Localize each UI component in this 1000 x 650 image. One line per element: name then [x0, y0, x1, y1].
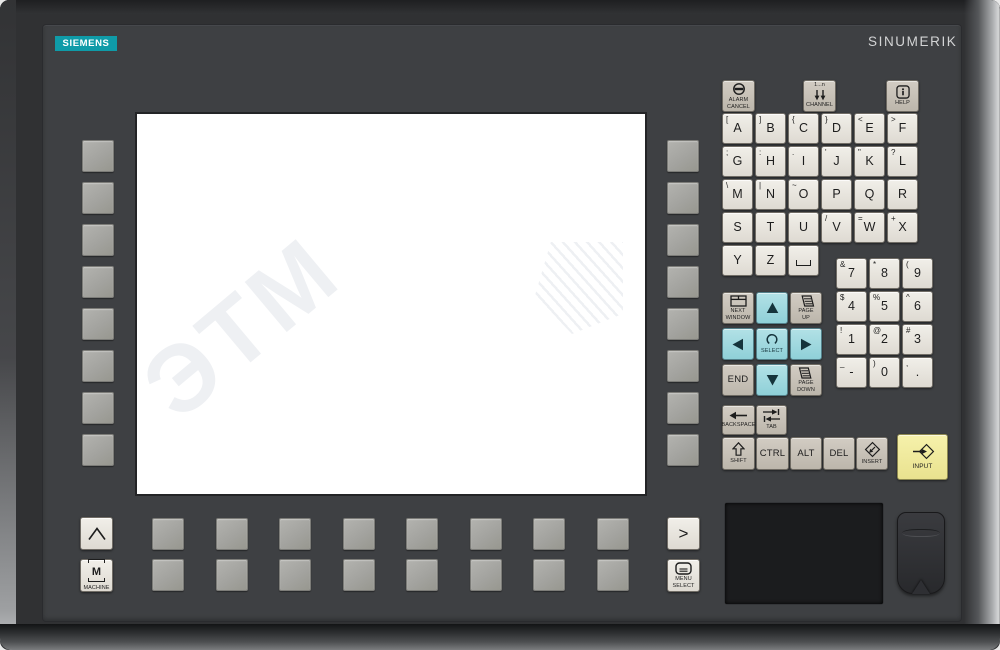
softkey-bottom-top-8[interactable] — [597, 518, 629, 550]
space-glyph — [796, 260, 811, 266]
insert-icon — [864, 441, 881, 458]
key-label: C — [799, 122, 808, 135]
watermark-text: ЭТМ — [137, 216, 361, 441]
key-label: INPUT — [913, 463, 933, 471]
key-label: F — [899, 122, 907, 135]
key-f[interactable]: >F — [887, 113, 918, 144]
key-shift-symbol: ) — [873, 360, 876, 368]
page-down-icon — [798, 367, 815, 379]
key-label: Y — [733, 254, 741, 267]
key-a[interactable]: [A — [722, 113, 753, 144]
key-shift-symbol: < — [858, 116, 863, 124]
key-label: 9 — [914, 267, 921, 280]
frame-left-edge — [0, 0, 16, 650]
softkey-bottom-lower-2[interactable] — [216, 559, 248, 591]
key-top-text: 1...n — [814, 83, 825, 89]
key-label: 8 — [881, 267, 888, 280]
key-shift-symbol: , — [906, 360, 908, 368]
key-label: 3 — [914, 333, 921, 346]
key-label: SELECT — [761, 348, 783, 355]
arrow-down-icon — [766, 374, 779, 386]
input-icon — [911, 443, 935, 460]
key-label: 4 — [848, 300, 855, 313]
key-label: E — [865, 122, 873, 135]
key-shift-symbol: / — [825, 215, 827, 223]
menu-forward-key[interactable]: > — [667, 517, 700, 550]
select-key[interactable]: SELECT — [756, 328, 788, 360]
key-y[interactable]: Y — [722, 245, 753, 276]
key-shift-symbol: # — [906, 327, 910, 335]
key-label: R — [898, 188, 907, 201]
key-shift-symbol: [ — [726, 116, 728, 124]
softkey-left-2[interactable] — [82, 182, 114, 214]
key-8[interactable]: *8 — [869, 258, 900, 289]
key-4[interactable]: $4 — [836, 291, 867, 322]
softkey-right-1[interactable] — [667, 140, 699, 172]
key-b[interactable]: ]B — [755, 113, 786, 144]
softkey-right-5[interactable] — [667, 308, 699, 340]
softkey-right-8[interactable] — [667, 434, 699, 466]
key-label: 1 — [848, 333, 855, 346]
frame-top-edge — [0, 0, 1000, 14]
key-shift-symbol: % — [873, 294, 880, 302]
key-label: G — [733, 155, 743, 168]
stylus-holder — [897, 512, 945, 594]
stylus-holder-groove — [902, 529, 940, 537]
softkey-bottom-top-7[interactable] — [533, 518, 565, 550]
softkey-bottom-lower-5[interactable] — [406, 559, 438, 591]
key-label: M — [732, 188, 742, 201]
page-up-icon — [798, 295, 815, 307]
key-label: V — [832, 221, 840, 234]
key-shift-symbol: ( — [906, 261, 909, 269]
product-name: SINUMERIK — [868, 34, 957, 49]
arrow-up-icon — [766, 302, 779, 314]
backspace-key[interactable]: BACKSPACE — [722, 405, 755, 435]
key-e[interactable]: <E — [854, 113, 885, 144]
softkey-left-4[interactable] — [82, 266, 114, 298]
softkey-right-3[interactable] — [667, 224, 699, 256]
key-shift-symbol: | — [759, 182, 761, 190]
key-label: I — [802, 155, 805, 168]
key-dot[interactable]: ,. — [902, 357, 933, 388]
cursor-left-key[interactable] — [722, 328, 754, 360]
key-shift-symbol: ' — [825, 149, 827, 157]
machine-key[interactable]: MMACHINE — [80, 559, 113, 592]
softkey-left-8[interactable] — [82, 434, 114, 466]
key-label: N — [766, 188, 775, 201]
cursor-up-key[interactable] — [756, 292, 788, 324]
softkey-right-7[interactable] — [667, 392, 699, 424]
shift-key[interactable]: SHIFT — [722, 437, 755, 470]
key-2[interactable]: @2 — [869, 324, 900, 355]
softkey-left-6[interactable] — [82, 350, 114, 382]
key-label: U — [799, 221, 808, 234]
arrow-right-icon — [800, 338, 812, 351]
key-q[interactable]: Q — [854, 179, 885, 210]
key-v[interactable]: /V — [821, 212, 852, 243]
key-i[interactable]: .I — [788, 146, 819, 177]
key-label: INSERT — [862, 459, 883, 466]
key-label: 2 — [881, 333, 888, 346]
softkey-bottom-top-2[interactable] — [216, 518, 248, 550]
frame-right-edge — [964, 0, 1000, 650]
key-shift-symbol: _ — [840, 360, 844, 368]
key-m[interactable]: \M — [722, 179, 753, 210]
key-w[interactable]: =W — [854, 212, 885, 243]
key-s[interactable]: S — [722, 212, 753, 243]
softkey-bottom-top-1[interactable] — [152, 518, 184, 550]
key-shift-symbol: * — [873, 261, 876, 269]
key-shift-symbol: : — [759, 149, 761, 157]
page-down-key[interactable]: PAGE DOWN — [790, 364, 822, 396]
key-label: J — [833, 155, 839, 168]
backspace-icon — [729, 411, 748, 420]
machine-letter: M — [92, 566, 101, 578]
insert-key[interactable]: INSERT — [856, 437, 888, 470]
key-label: O — [799, 188, 809, 201]
key-shift-symbol: ; — [726, 149, 728, 157]
ctrl-key[interactable]: CTRL — [756, 437, 789, 470]
stylus-holder-notch — [912, 580, 930, 594]
softkey-left-7[interactable] — [82, 392, 114, 424]
watermark-emblem — [535, 242, 623, 334]
key-shift-symbol: ? — [891, 149, 895, 157]
key-shift-symbol: . — [792, 149, 794, 157]
key-label: H — [766, 155, 775, 168]
softkey-bottom-lower-7[interactable] — [533, 559, 565, 591]
key-label: MACHINE — [83, 585, 109, 592]
key-label: END — [728, 375, 749, 385]
softkey-bottom-lower-1[interactable] — [152, 559, 184, 591]
key-shift-symbol: + — [891, 215, 896, 223]
tab-icon — [762, 409, 781, 422]
arrow-left-icon — [732, 338, 744, 351]
key-shift-symbol: } — [825, 116, 828, 124]
next-window-icon — [730, 295, 747, 307]
key-label: . — [916, 366, 919, 379]
key-0[interactable]: )0 — [869, 357, 900, 388]
key-shift-symbol: > — [891, 116, 896, 124]
key-label: HELP — [895, 100, 910, 107]
key-label: W — [864, 221, 876, 234]
key-shift-symbol: \ — [726, 182, 728, 190]
key-label: PAGE DOWN — [797, 380, 815, 393]
key-label: K — [865, 155, 873, 168]
key-h[interactable]: :H — [755, 146, 786, 177]
key-label: PAGE UP — [798, 308, 813, 321]
key-label: ALARM CANCEL — [727, 97, 750, 110]
channel-icon — [812, 90, 828, 101]
key-label: P — [832, 188, 840, 201]
key-r[interactable]: R — [887, 179, 918, 210]
key-shift-symbol: " — [858, 149, 861, 157]
key-label: SHIFT — [730, 458, 746, 465]
tab-key[interactable]: TAB — [756, 405, 787, 435]
key-label: CTRL — [760, 449, 786, 459]
page-up-key[interactable]: PAGE UP — [790, 292, 822, 324]
touchpad[interactable] — [725, 503, 883, 604]
key-label: BACKSPACE — [721, 422, 755, 429]
key-label: 6 — [914, 300, 921, 313]
key-label: 5 — [881, 300, 888, 313]
caret-icon — [86, 527, 108, 541]
key-6[interactable]: ^6 — [902, 291, 933, 322]
key-label: Q — [865, 188, 875, 201]
key-label: ALT — [797, 449, 814, 459]
key-n[interactable]: |N — [755, 179, 786, 210]
key-label: A — [733, 122, 741, 135]
key-label: S — [733, 221, 741, 234]
key-label: NEXT WINDOW — [726, 308, 751, 321]
machine-brackets-icon: M — [88, 559, 105, 582]
cursor-right-key[interactable] — [790, 328, 822, 360]
softkey-left-5[interactable] — [82, 308, 114, 340]
key-shift-symbol: { — [792, 116, 795, 124]
del-key[interactable]: DEL — [823, 437, 855, 470]
key-label: Z — [767, 254, 775, 267]
key-label: 7 — [848, 267, 855, 280]
key-k[interactable]: "K — [854, 146, 885, 177]
key-p[interactable]: P — [821, 179, 852, 210]
key-z[interactable]: Z — [755, 245, 786, 276]
key-label: - — [849, 366, 853, 379]
key-shift-symbol: & — [840, 261, 845, 269]
key-label: > — [679, 525, 689, 542]
softkey-bottom-lower-3[interactable] — [279, 559, 311, 591]
key-u[interactable]: U — [788, 212, 819, 243]
softkey-bottom-lower-8[interactable] — [597, 559, 629, 591]
menu-recall-key[interactable] — [80, 517, 113, 550]
menu-select-key[interactable]: MENU SELECT — [667, 559, 700, 592]
key-shift-symbol: ~ — [792, 182, 797, 190]
key-x[interactable]: +X — [887, 212, 918, 243]
frame-bottom-edge — [0, 624, 1000, 650]
key-shift-symbol: = — [858, 215, 863, 223]
alt-key[interactable]: ALT — [790, 437, 822, 470]
key-label: TAB — [766, 424, 777, 431]
softkey-left-1[interactable] — [82, 140, 114, 172]
key-label: X — [898, 221, 906, 234]
alarm-cancel-icon — [732, 82, 746, 96]
key-space[interactable] — [788, 245, 819, 276]
key-label: L — [899, 155, 906, 168]
siemens-logo: SIEMENS — [55, 36, 117, 51]
key-j[interactable]: 'J — [821, 146, 852, 177]
key-label: T — [767, 221, 775, 234]
input-key[interactable]: INPUT — [897, 434, 948, 480]
display-screen: ЭТМ — [137, 114, 645, 494]
key-label: 0 — [881, 366, 888, 379]
key-label: D — [832, 122, 841, 135]
key-c[interactable]: {C — [788, 113, 819, 144]
softkey-bottom-lower-4[interactable] — [343, 559, 375, 591]
key-label: DEL — [829, 449, 848, 459]
key-t[interactable]: T — [755, 212, 786, 243]
key-1[interactable]: !1 — [836, 324, 867, 355]
menu-select-icon — [675, 562, 692, 575]
key-l[interactable]: ?L — [887, 146, 918, 177]
next-window-key[interactable]: NEXT WINDOW — [722, 292, 754, 324]
key-shift-symbol: ^ — [906, 294, 910, 302]
key-label: B — [766, 122, 774, 135]
help-icon — [896, 85, 910, 99]
key-label: CHANNEL — [806, 102, 833, 109]
key-g[interactable]: ;G — [722, 146, 753, 177]
key-o[interactable]: ~O — [788, 179, 819, 210]
softkey-bottom-top-4[interactable] — [343, 518, 375, 550]
key-shift-symbol: ! — [840, 327, 842, 335]
key-7[interactable]: &7 — [836, 258, 867, 289]
key-5[interactable]: %5 — [869, 291, 900, 322]
select-icon — [765, 333, 779, 346]
help-key[interactable]: HELP — [886, 80, 919, 112]
shift-icon — [732, 442, 745, 456]
softkey-right-6[interactable] — [667, 350, 699, 382]
cursor-down-key[interactable] — [756, 364, 788, 396]
key-shift-symbol: ] — [759, 116, 761, 124]
alarm-cancel-key[interactable]: ALARM CANCEL — [722, 80, 755, 112]
softkey-bottom-top-3[interactable] — [279, 518, 311, 550]
softkey-bottom-top-6[interactable] — [470, 518, 502, 550]
softkey-right-2[interactable] — [667, 182, 699, 214]
key-shift-symbol: @ — [873, 327, 881, 335]
channel-key[interactable]: 1...nCHANNEL — [803, 80, 836, 112]
softkey-bottom-lower-6[interactable] — [470, 559, 502, 591]
key-label: MENU SELECT — [673, 576, 695, 589]
key-shift-symbol: $ — [840, 294, 844, 302]
softkey-left-3[interactable] — [82, 224, 114, 256]
key-d[interactable]: }D — [821, 113, 852, 144]
key-3[interactable]: #3 — [902, 324, 933, 355]
softkey-bottom-top-5[interactable] — [406, 518, 438, 550]
softkey-right-4[interactable] — [667, 266, 699, 298]
key-minus[interactable]: _- — [836, 357, 867, 388]
key-9[interactable]: (9 — [902, 258, 933, 289]
end-key[interactable]: END — [722, 364, 754, 396]
operator-panel: SIEMENS SINUMERIK ЭТМ ALARM CANCEL1...nC… — [0, 0, 1000, 650]
